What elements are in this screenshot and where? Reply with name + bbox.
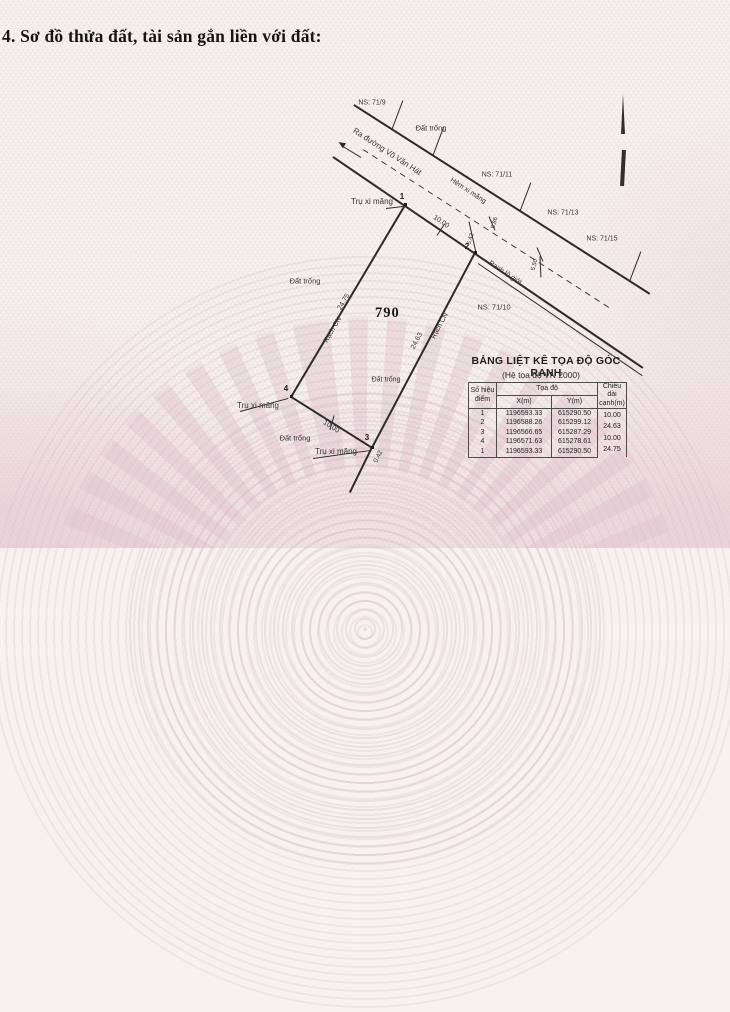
edge-length-value: 24.75 xyxy=(598,446,626,454)
label-dim-24-63: 24.63 xyxy=(410,332,424,351)
label-tru-xi-mang-3: Trụ xi măng xyxy=(315,448,357,456)
label-point-3: 3 xyxy=(365,434,369,442)
label-hem-xi-mang: Hẻm xi măng xyxy=(449,177,487,205)
coord-cell-y: 615278.61 xyxy=(552,438,598,448)
col-header-y: Y(m) xyxy=(552,396,598,409)
parcel-number: 790 xyxy=(375,305,400,322)
label-point-4: 4 xyxy=(284,385,288,393)
label-ns-71-11: NS: 71/11 xyxy=(482,172,513,179)
diagram-line-8 xyxy=(371,252,476,448)
parcel-vertex-4 xyxy=(290,395,293,398)
label-ns-71-10: NS: 71/10 xyxy=(477,303,510,311)
label-dim-5-50: 5.50 xyxy=(531,259,540,272)
label-ns-71-13: NS: 71/13 xyxy=(547,210,578,217)
label-dim-0-42: 0.42 xyxy=(373,450,385,464)
coord-cell-y: 615299.12 xyxy=(552,419,598,429)
label-point-2: 2 xyxy=(465,243,469,251)
label-dat-trong-top: Đất trống xyxy=(416,124,447,132)
coord-cell-x: 1196593.33 xyxy=(497,409,552,419)
coord-cell-point: 1 xyxy=(469,447,497,457)
diagram-line-4 xyxy=(629,251,641,280)
label-point-1: 1 xyxy=(400,193,404,201)
coord-cell-y: 615290.50 xyxy=(552,409,598,419)
label-dim-24-75: 24.75 xyxy=(337,293,352,312)
label-ns-71-9: NS: 71/9 xyxy=(358,100,385,107)
label-tru-xi-mang-1: Trụ xi măng xyxy=(351,198,393,206)
edge-length-value: 24.63 xyxy=(598,423,626,431)
north-arrow-icon xyxy=(612,94,636,194)
coord-cell-x: 1196571.63 xyxy=(497,438,552,448)
diagram-line-1 xyxy=(391,100,403,129)
coord-cell-x: 1196566.65 xyxy=(497,428,552,438)
label-dat-trong-mid: Đất trống xyxy=(372,377,401,384)
parcel-vertex-1 xyxy=(404,203,407,206)
col-header-length: Chiều dài cạnh(m) xyxy=(598,383,627,409)
diagram-line-3 xyxy=(519,182,531,211)
diagram-line-21 xyxy=(343,146,362,158)
coord-cell-point: 3 xyxy=(469,428,497,438)
coordinate-table-subtitle: (Hệ tọa độ VN 2000) xyxy=(458,370,624,380)
label-ra-duong-vo-van-hat: Ra đường Võ Văn Hát xyxy=(351,127,422,177)
edge-length-value: 10.00 xyxy=(598,412,626,420)
label-dat-trong-bottom: Đất trống xyxy=(280,434,311,442)
scanned-certificate-page: { "page": { "title": "4. Sơ đồ thửa đất,… xyxy=(0,0,730,548)
col-header-coords: Tọa độ xyxy=(497,383,598,396)
coord-row-1: 11196593.33615290.5010.0024.6310.0024.75 xyxy=(469,409,627,419)
parcel-vertex-2 xyxy=(474,251,477,254)
coord-cell-point: 1 xyxy=(469,409,497,419)
coordinate-table-body: 11196593.33615290.5010.0024.6310.0024.75… xyxy=(469,409,627,458)
coordinate-table: Số hiệu điểm Tọa độ Chiều dài cạnh(m) X(… xyxy=(468,382,627,458)
coord-cell-point: 2 xyxy=(469,419,497,429)
north-arrow-needle xyxy=(621,94,625,134)
coord-cell-y: 615290.50 xyxy=(552,447,598,457)
coord-cell-x: 1196588.26 xyxy=(497,419,552,429)
label-rach-cn-left: Rạch CN xyxy=(323,316,343,344)
col-header-point-id: Số hiệu điểm xyxy=(469,383,497,409)
label-dim-5-86: 5.86 xyxy=(491,217,500,230)
parcel-vertex-3 xyxy=(371,446,374,449)
label-tru-xi-mang-4: Trụ xi măng xyxy=(237,402,279,410)
parcel-diagram: 790 NS: 71/9Đất trốngRa đường Võ Văn Hát… xyxy=(0,0,730,548)
coord-cell-y: 615287.29 xyxy=(552,428,598,438)
edge-length-value: 10.00 xyxy=(598,435,626,443)
label-ns-71-15: NS: 71/15 xyxy=(586,236,617,243)
label-dat-trong-left: Đất trống xyxy=(290,277,321,285)
edge-length-column: 10.0024.6310.0024.75 xyxy=(598,409,627,458)
coord-cell-point: 4 xyxy=(469,438,497,448)
label-rach-cn-right: Rạch CN xyxy=(430,312,450,340)
north-arrow-bar xyxy=(620,150,626,186)
col-header-x: X(m) xyxy=(497,396,552,409)
coord-cell-x: 1196593.33 xyxy=(497,447,552,457)
